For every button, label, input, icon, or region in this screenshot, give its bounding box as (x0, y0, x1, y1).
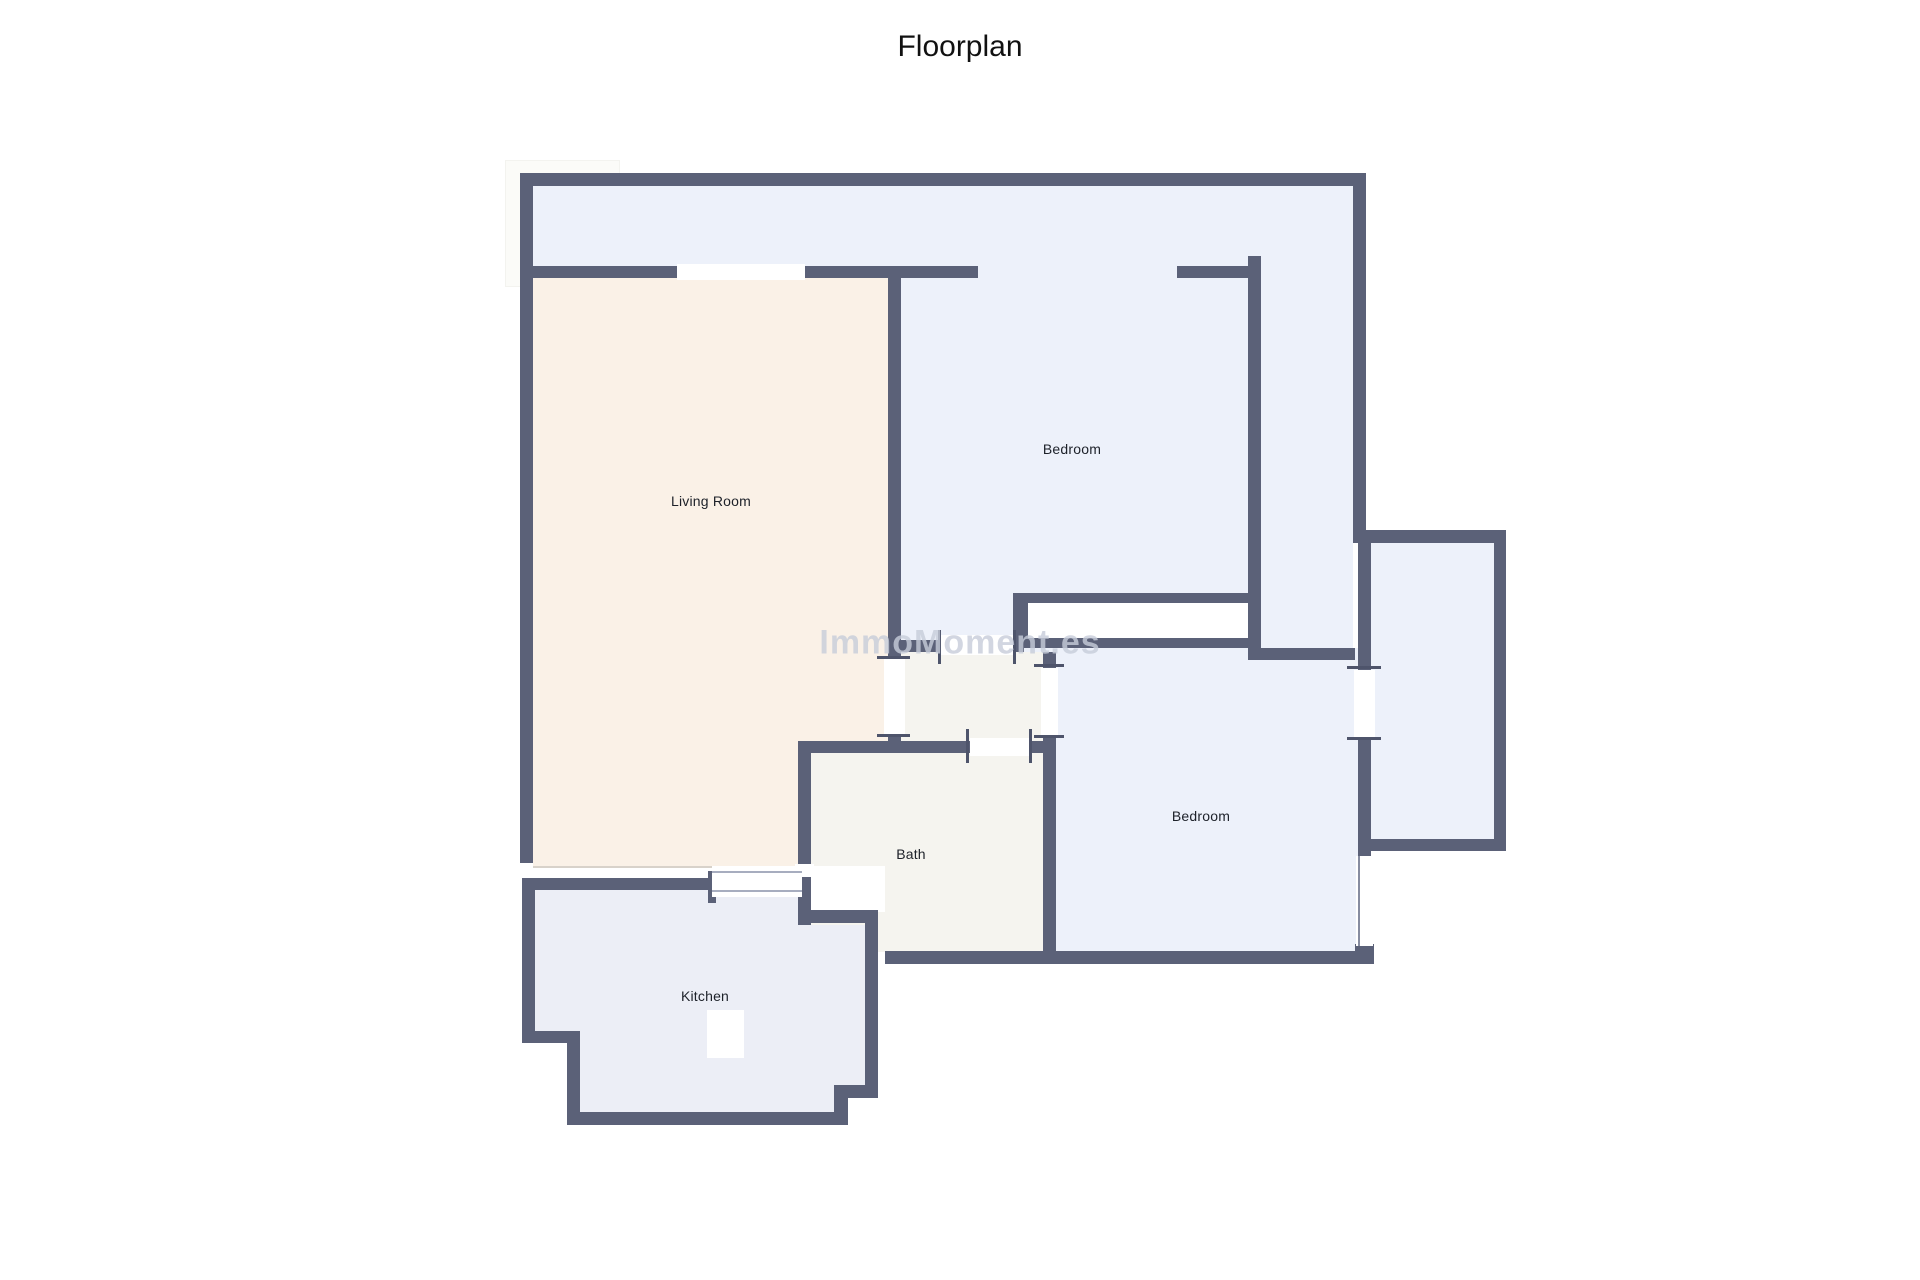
window-kitchen-line-bottom (712, 890, 802, 892)
watermark: ImmoMoment.es (819, 624, 1100, 663)
wall-bedroom-lower-east-mid (1358, 738, 1371, 858)
wall-outer-top (520, 173, 1366, 186)
bedroom-lower-floor (1056, 648, 1371, 951)
door-bath-jamb-right (1029, 729, 1032, 763)
window-bedroom-lower (1354, 670, 1375, 737)
wall-kitchen-step-east-h (834, 1085, 878, 1098)
extension-floor (1358, 543, 1494, 839)
door-bedroom-lower-jamb-top (1034, 664, 1064, 667)
floorplan-page: Floorplan (0, 0, 1920, 1280)
wall-extension-top (1353, 530, 1506, 543)
wall-living-east (888, 266, 901, 661)
bath-label: Bath (896, 846, 926, 862)
wall-extension-bottom (1358, 839, 1506, 851)
kitchen-island (707, 1010, 744, 1058)
door-living-jamb-bottom (877, 734, 910, 737)
bedroom-lower-label: Bedroom (1172, 808, 1230, 824)
door-bath-jamb-left (966, 729, 969, 763)
window-bedroom-lower-south-glass (1358, 856, 1360, 946)
entry-notch (811, 866, 885, 912)
wall-kitchen-east (865, 910, 878, 1098)
bedroom-upper-label: Bedroom (1043, 441, 1101, 457)
wall-wardrobe-top (1017, 593, 1253, 603)
door-living (884, 659, 905, 736)
wall-bath-east (1043, 738, 1056, 955)
wall-kitchen-west (522, 878, 535, 1043)
window-kitchen-line-top (712, 871, 802, 873)
door-bedroom-lower-jamb-bottom (1034, 735, 1064, 738)
hallway-top-floor (533, 186, 1353, 278)
hallway-center-floor (901, 652, 1043, 741)
door-bath (970, 738, 1029, 756)
window-bedroom-lower-sill-top (1347, 666, 1381, 669)
wall-outer-right (1353, 173, 1366, 543)
wall-kitchen-step-west-v (567, 1031, 580, 1124)
wall-bath-north (798, 741, 970, 753)
window-living-north (677, 264, 805, 280)
window-bedroom-lower-sill-bottom (1347, 737, 1381, 740)
wall-bedroom-lower-east-upper (1358, 543, 1371, 670)
wall-south (885, 951, 1374, 964)
corridor-floor (1261, 186, 1353, 660)
kitchen-label: Kitchen (681, 988, 729, 1004)
wall-bath-west (798, 741, 811, 925)
wall-living-north-left (528, 266, 677, 278)
wall-extension-right (1494, 530, 1506, 851)
wall-kitchen-north (522, 878, 714, 890)
door-bedroom-lower (1041, 668, 1058, 738)
page-title: Floorplan (0, 30, 1920, 64)
wall-bedroom-lower-north (1253, 648, 1355, 660)
living-room-label: Living Room (671, 493, 751, 509)
wall-kitchen-south (567, 1112, 848, 1125)
